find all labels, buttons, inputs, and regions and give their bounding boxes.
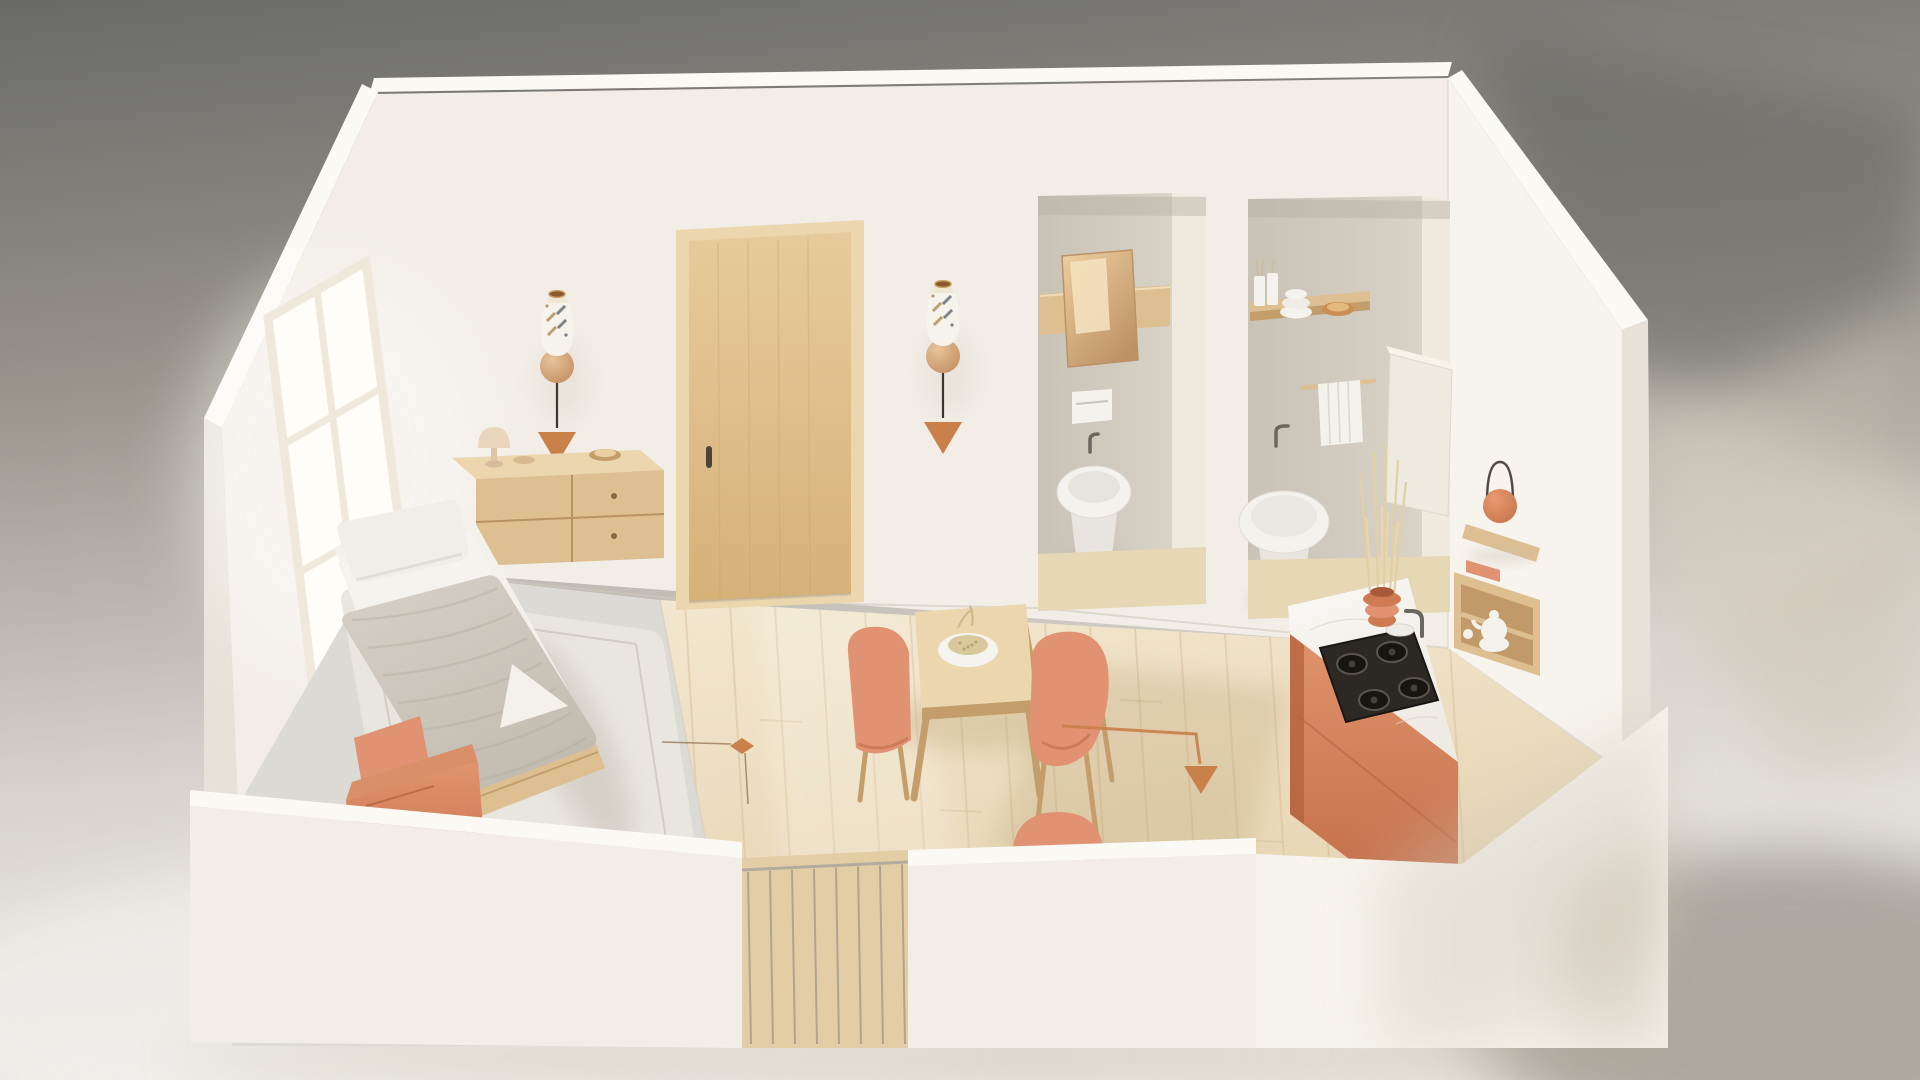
drawer-knob-1 — [611, 493, 617, 499]
door-handle — [706, 446, 712, 468]
drawer-knob-2 — [611, 533, 617, 539]
bowl-contents — [948, 635, 988, 655]
door — [676, 220, 864, 610]
chair-left-shell — [848, 627, 911, 754]
sphere-lamp — [1483, 489, 1517, 523]
apartment-diorama: Miniature apartment diorama — isometric … — [0, 0, 1920, 1080]
bath-niche-1 — [1038, 193, 1206, 611]
niche1-side-wall — [1172, 193, 1206, 604]
teapot-lid — [1489, 610, 1499, 620]
screenshot-root: Miniature apartment diorama — isometric … — [0, 0, 1920, 1080]
teapot-body — [1481, 617, 1507, 643]
niche2-lintel-shadow — [1248, 199, 1450, 219]
canister-1 — [1254, 276, 1265, 306]
lamp-base — [485, 461, 503, 468]
niche1-lintel-shadow — [1038, 196, 1206, 216]
small-cup — [1463, 629, 1473, 639]
tp-holder — [1072, 389, 1112, 424]
small-dish — [513, 456, 535, 464]
small-shelf-shadow — [1468, 550, 1536, 562]
niche1-floor — [1038, 547, 1206, 611]
bidet-rim — [1068, 471, 1120, 503]
center-parapet-face — [908, 854, 1256, 1048]
wooden-bowl-inner — [594, 449, 616, 457]
toilet-seat — [1251, 495, 1317, 537]
door-panel — [689, 232, 851, 602]
cup-stack-3 — [1285, 289, 1307, 299]
canister-2 — [1267, 273, 1278, 305]
wood-bowl-inner — [1327, 303, 1349, 312]
sink — [1386, 624, 1414, 636]
mirror-reflection — [1070, 258, 1110, 334]
pot-mouth — [1370, 587, 1394, 597]
counter-side — [1290, 634, 1304, 824]
lamp-stem — [491, 448, 497, 462]
